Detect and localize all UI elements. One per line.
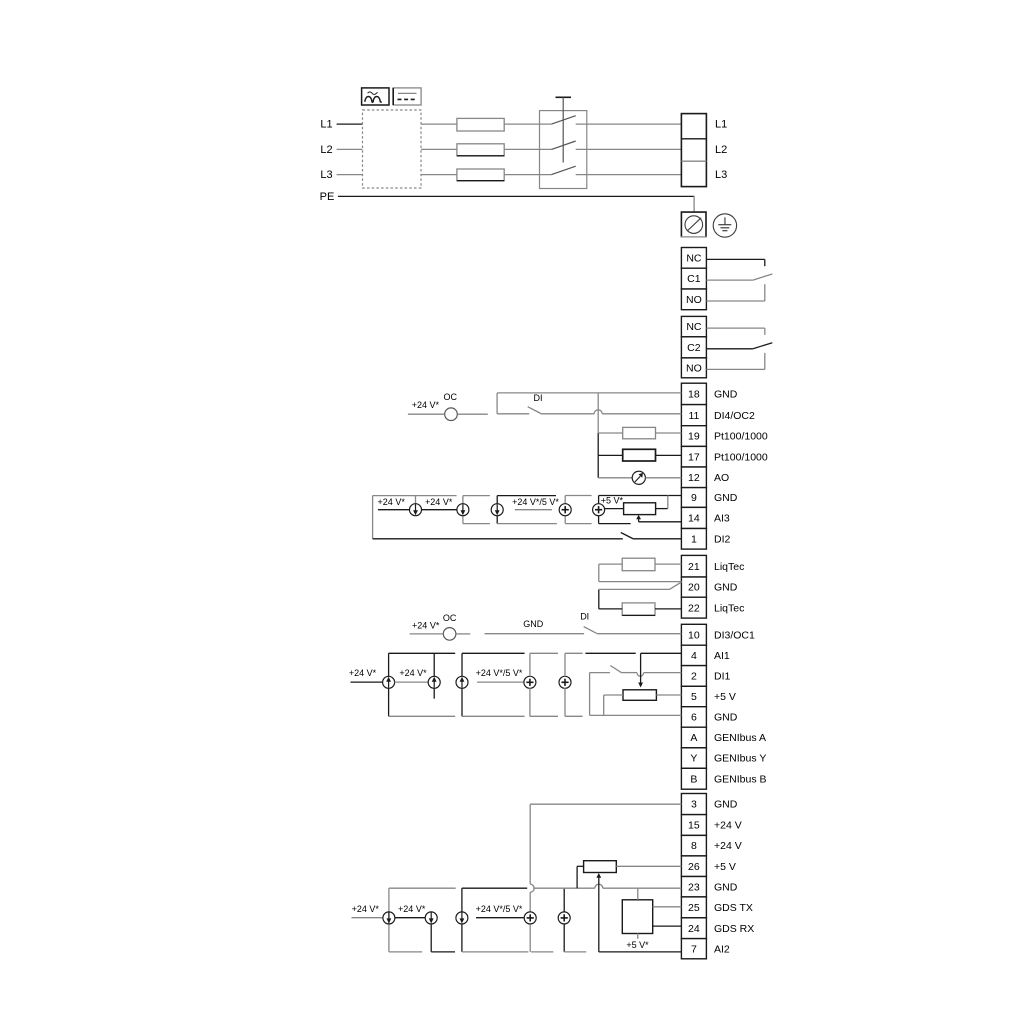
svg-text:2: 2	[691, 671, 697, 683]
svg-text:+24 V*: +24 V*	[378, 497, 406, 507]
svg-text:3: 3	[691, 799, 697, 811]
svg-text:+24 V*: +24 V*	[425, 497, 453, 507]
svg-text:+24 V: +24 V	[714, 820, 742, 832]
svg-text:9: 9	[691, 492, 697, 504]
svg-text:1: 1	[691, 533, 697, 545]
svg-text:+24 V*: +24 V*	[349, 668, 377, 678]
svg-text:NO: NO	[686, 363, 702, 375]
svg-text:+24 V*: +24 V*	[412, 621, 440, 631]
svg-text:+5 V: +5 V	[714, 691, 736, 703]
svg-text:15: 15	[688, 820, 700, 832]
svg-text:DI2: DI2	[714, 533, 731, 545]
svg-text:+5 V*: +5 V*	[601, 496, 624, 506]
svg-text:GND: GND	[714, 492, 738, 504]
svg-text:GENIbus B: GENIbus B	[714, 773, 767, 785]
svg-text:L3: L3	[715, 169, 727, 181]
svg-text:11: 11	[688, 410, 699, 422]
svg-text:GDS RX: GDS RX	[714, 923, 754, 935]
svg-text:GND: GND	[714, 389, 738, 401]
svg-text:23: 23	[688, 881, 700, 893]
svg-text:+24 V*/5 V*: +24 V*/5 V*	[476, 668, 523, 678]
svg-text:GND: GND	[523, 619, 544, 629]
svg-text:NC: NC	[686, 253, 702, 265]
svg-text:AI1: AI1	[714, 650, 730, 662]
svg-text:+5 V*: +5 V*	[626, 940, 649, 950]
svg-text:DI: DI	[534, 393, 543, 403]
svg-text:+5 V: +5 V	[714, 861, 736, 873]
svg-text:19: 19	[688, 431, 700, 443]
svg-text:AO: AO	[714, 472, 729, 484]
svg-text:7: 7	[691, 943, 697, 955]
svg-text:L1: L1	[715, 119, 727, 131]
svg-text:5: 5	[691, 691, 697, 703]
svg-text:LiqTec: LiqTec	[714, 602, 744, 614]
svg-text:22: 22	[688, 602, 700, 614]
svg-text:A: A	[690, 732, 697, 744]
svg-text:L2: L2	[320, 144, 332, 156]
svg-text:25: 25	[688, 902, 700, 914]
svg-text:NC: NC	[686, 321, 702, 333]
svg-text:L3: L3	[320, 169, 332, 181]
svg-text:OC: OC	[443, 613, 457, 623]
svg-text:14: 14	[688, 513, 700, 525]
svg-text:GND: GND	[714, 799, 738, 811]
svg-text:24: 24	[688, 923, 700, 935]
svg-text:+24 V*: +24 V*	[412, 400, 440, 410]
svg-text:GENIbus A: GENIbus A	[714, 732, 766, 744]
svg-text:GND: GND	[714, 582, 738, 594]
svg-text:DI4/OC2: DI4/OC2	[714, 410, 755, 422]
svg-text:21: 21	[688, 561, 700, 573]
svg-text:+24 V*/5 V*: +24 V*/5 V*	[512, 497, 559, 507]
svg-text:GDS TX: GDS TX	[714, 902, 753, 914]
svg-text:OC: OC	[444, 392, 458, 402]
svg-text:8: 8	[691, 840, 697, 852]
svg-text:GND: GND	[714, 881, 738, 893]
svg-text:+24 V*: +24 V*	[399, 668, 427, 678]
svg-text:C1: C1	[687, 273, 701, 285]
svg-text:+24 V*: +24 V*	[352, 904, 380, 914]
svg-text:GND: GND	[714, 712, 738, 724]
svg-text:Pt100/1000: Pt100/1000	[714, 451, 768, 463]
svg-text:B: B	[690, 773, 697, 785]
svg-text:L1: L1	[320, 119, 332, 131]
svg-text:LiqTec: LiqTec	[714, 561, 744, 573]
svg-text:12: 12	[688, 472, 700, 484]
svg-text:Y: Y	[690, 753, 697, 765]
svg-text:+24 V*: +24 V*	[398, 904, 426, 914]
svg-text:Pt100/1000: Pt100/1000	[714, 431, 768, 443]
svg-text:DI1: DI1	[714, 671, 731, 683]
svg-text:10: 10	[688, 629, 700, 641]
svg-text:4: 4	[691, 650, 697, 662]
svg-text:26: 26	[688, 861, 700, 873]
svg-text:+24 V*/5 V*: +24 V*/5 V*	[476, 904, 523, 914]
svg-text:AI2: AI2	[714, 943, 730, 955]
svg-text:17: 17	[688, 451, 700, 463]
svg-text:PE: PE	[320, 191, 335, 203]
svg-text:GENIbus Y: GENIbus Y	[714, 753, 766, 765]
svg-text:L2: L2	[715, 144, 727, 156]
svg-text:+24 V: +24 V	[714, 840, 742, 852]
svg-text:AI3: AI3	[714, 513, 730, 525]
svg-text:6: 6	[691, 712, 697, 724]
svg-text:DI: DI	[580, 612, 589, 622]
svg-text:NO: NO	[686, 294, 702, 306]
svg-text:20: 20	[688, 582, 700, 594]
svg-text:C2: C2	[687, 342, 701, 354]
svg-text:DI3/OC1: DI3/OC1	[714, 629, 755, 641]
svg-text:18: 18	[688, 389, 700, 401]
